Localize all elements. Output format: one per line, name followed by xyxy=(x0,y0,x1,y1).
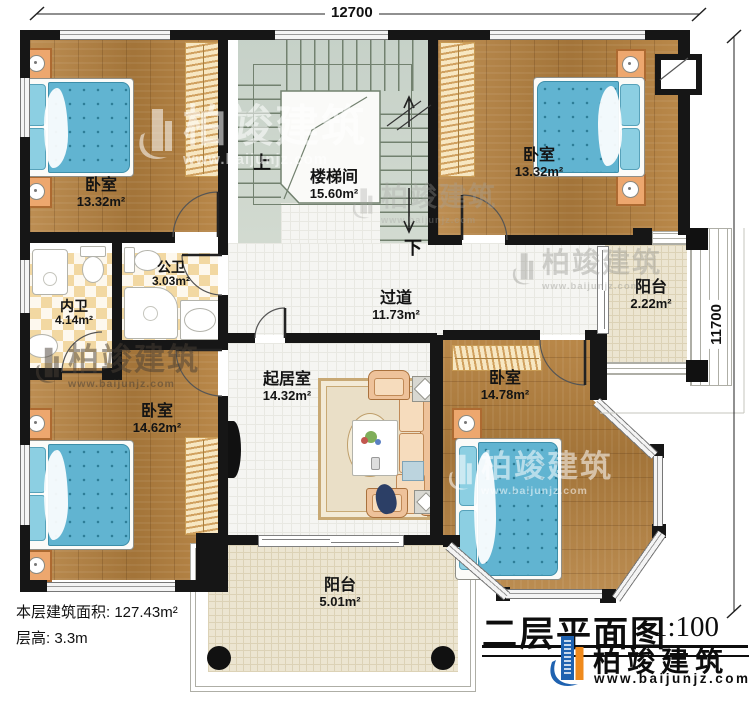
floor-hallway-stair-notch xyxy=(281,203,380,243)
room-name: 卧室 xyxy=(85,177,117,194)
dimension-height: 11700 xyxy=(708,300,725,349)
nightstand xyxy=(452,408,482,440)
room-label-hallway: 过道 11.73m² xyxy=(372,291,420,321)
room-name: 内卫 xyxy=(60,298,88,314)
shower-tray xyxy=(32,249,68,295)
stair-down-label: 下 xyxy=(404,234,422,260)
room-label-bath-private: 内卫 4.14m² xyxy=(55,299,93,326)
column xyxy=(431,646,455,670)
room-label-balcony-bottom: 阳台 5.01m² xyxy=(319,578,360,608)
wall xyxy=(633,228,652,245)
room-label-bedroom-top-right: 卧室 13.32m² xyxy=(515,148,563,178)
room-area: 13.32m² xyxy=(77,195,125,209)
room-name: 楼梯间 xyxy=(310,169,358,186)
wall xyxy=(285,333,437,343)
room-label-bedroom-bottom-left: 卧室 14.62m² xyxy=(133,404,181,434)
sliding-door-panel xyxy=(262,539,330,540)
sliding-door-panel xyxy=(331,542,399,543)
room-area: 5.01m² xyxy=(319,595,360,609)
brand-logo-icon xyxy=(548,634,588,695)
wall xyxy=(20,137,30,260)
window xyxy=(47,582,175,592)
wall xyxy=(590,330,607,400)
flower-icon xyxy=(361,437,368,444)
shower-drain-icon xyxy=(143,306,158,321)
room-area: 15.60m² xyxy=(310,187,358,201)
window xyxy=(490,30,645,40)
lamp-icon xyxy=(622,181,639,198)
lamp-icon xyxy=(622,56,639,73)
room-name: 卧室 xyxy=(523,147,555,164)
toilet-bowl xyxy=(82,256,104,283)
room-area: 13.32m² xyxy=(515,165,563,179)
window xyxy=(20,260,30,313)
room-area: 14.32m² xyxy=(263,389,311,403)
room-label-bedroom-right: 卧室 14.78m² xyxy=(481,371,529,401)
wall xyxy=(112,243,122,380)
sliding-door-panel xyxy=(604,291,605,329)
room-label-living-room: 起居室 14.32m² xyxy=(263,372,311,402)
lamp-icon xyxy=(28,415,45,432)
wall xyxy=(218,396,228,592)
wardrobe xyxy=(185,42,220,177)
lamp-icon xyxy=(458,415,475,432)
room-area: 4.14m² xyxy=(55,314,93,327)
pillow xyxy=(620,84,640,126)
sliding-door-balcony-bottom xyxy=(258,535,404,547)
armchair xyxy=(368,370,410,400)
wall xyxy=(505,235,652,245)
lamp-icon xyxy=(28,183,45,200)
coffee-table xyxy=(352,420,398,476)
wall-niche xyxy=(655,54,702,95)
wall xyxy=(218,295,228,350)
bed-sheet xyxy=(44,88,68,168)
room-name: 卧室 xyxy=(141,403,173,420)
wall xyxy=(20,525,30,592)
column xyxy=(207,646,231,670)
room-name: 卧室 xyxy=(489,370,521,387)
nightstand xyxy=(616,174,646,206)
wardrobe xyxy=(440,42,475,177)
note-floor-area: 本层建筑面积: 127.43m² xyxy=(16,601,178,622)
room-name: 起居室 xyxy=(263,371,311,388)
stair-up-label: 上 xyxy=(253,149,271,175)
shower-drain-icon xyxy=(43,272,57,286)
armchair-cushion xyxy=(374,378,404,396)
balcony-right-railing-bottom xyxy=(605,362,691,375)
wall xyxy=(443,330,540,340)
column xyxy=(686,360,708,382)
lamp-icon xyxy=(28,55,45,72)
window xyxy=(20,78,30,137)
sliding-door-panel xyxy=(602,250,603,290)
wall xyxy=(218,30,228,255)
sliding-door-balcony-right xyxy=(597,246,609,334)
wall xyxy=(430,335,443,545)
room-label-bath-public: 公卫 3.03m² xyxy=(152,260,190,287)
floor-plan: 上 下 xyxy=(0,0,750,702)
remote xyxy=(371,457,380,470)
room-area: 2.22m² xyxy=(630,297,671,311)
wall xyxy=(228,333,255,343)
flower-icon xyxy=(375,439,381,445)
bay-window xyxy=(653,456,663,526)
room-name: 阳台 xyxy=(324,577,356,594)
window xyxy=(60,30,170,40)
pillow xyxy=(620,128,640,170)
brand-website: www.baijunjz.com xyxy=(594,671,750,686)
note-floor-height: 层高: 3.3m xyxy=(16,627,88,648)
room-area: 14.62m² xyxy=(133,421,181,435)
dimension-width: 12700 xyxy=(325,4,379,21)
wardrobe xyxy=(452,345,542,371)
room-area: 14.78m² xyxy=(481,388,529,402)
wall xyxy=(112,340,228,350)
bed-sheet xyxy=(474,452,496,564)
wall xyxy=(428,30,438,245)
sink xyxy=(26,334,58,358)
shower-tray xyxy=(124,287,178,339)
wall xyxy=(20,30,30,78)
window xyxy=(20,445,30,525)
window xyxy=(275,30,388,40)
bed-sheet xyxy=(44,450,68,540)
room-area: 3.03m² xyxy=(152,275,190,288)
room-name: 过道 xyxy=(380,290,412,307)
room-name: 阳台 xyxy=(635,279,667,296)
wardrobe xyxy=(185,437,220,535)
wall xyxy=(20,232,175,243)
room-area: 11.73m² xyxy=(372,308,420,322)
bay-window xyxy=(506,589,602,599)
room-label-balcony-right: 阳台 2.22m² xyxy=(630,280,671,310)
room-name: 公卫 xyxy=(157,259,185,275)
wall xyxy=(228,535,258,545)
room-label-bedroom-top-left: 卧室 13.32m² xyxy=(77,178,125,208)
room-label-stairwell: 楼梯间 15.60m² xyxy=(310,170,358,200)
sink xyxy=(184,308,216,332)
wall xyxy=(20,313,30,445)
lamp-icon xyxy=(28,557,45,574)
bed-sheet xyxy=(598,86,622,166)
stool xyxy=(402,461,424,481)
